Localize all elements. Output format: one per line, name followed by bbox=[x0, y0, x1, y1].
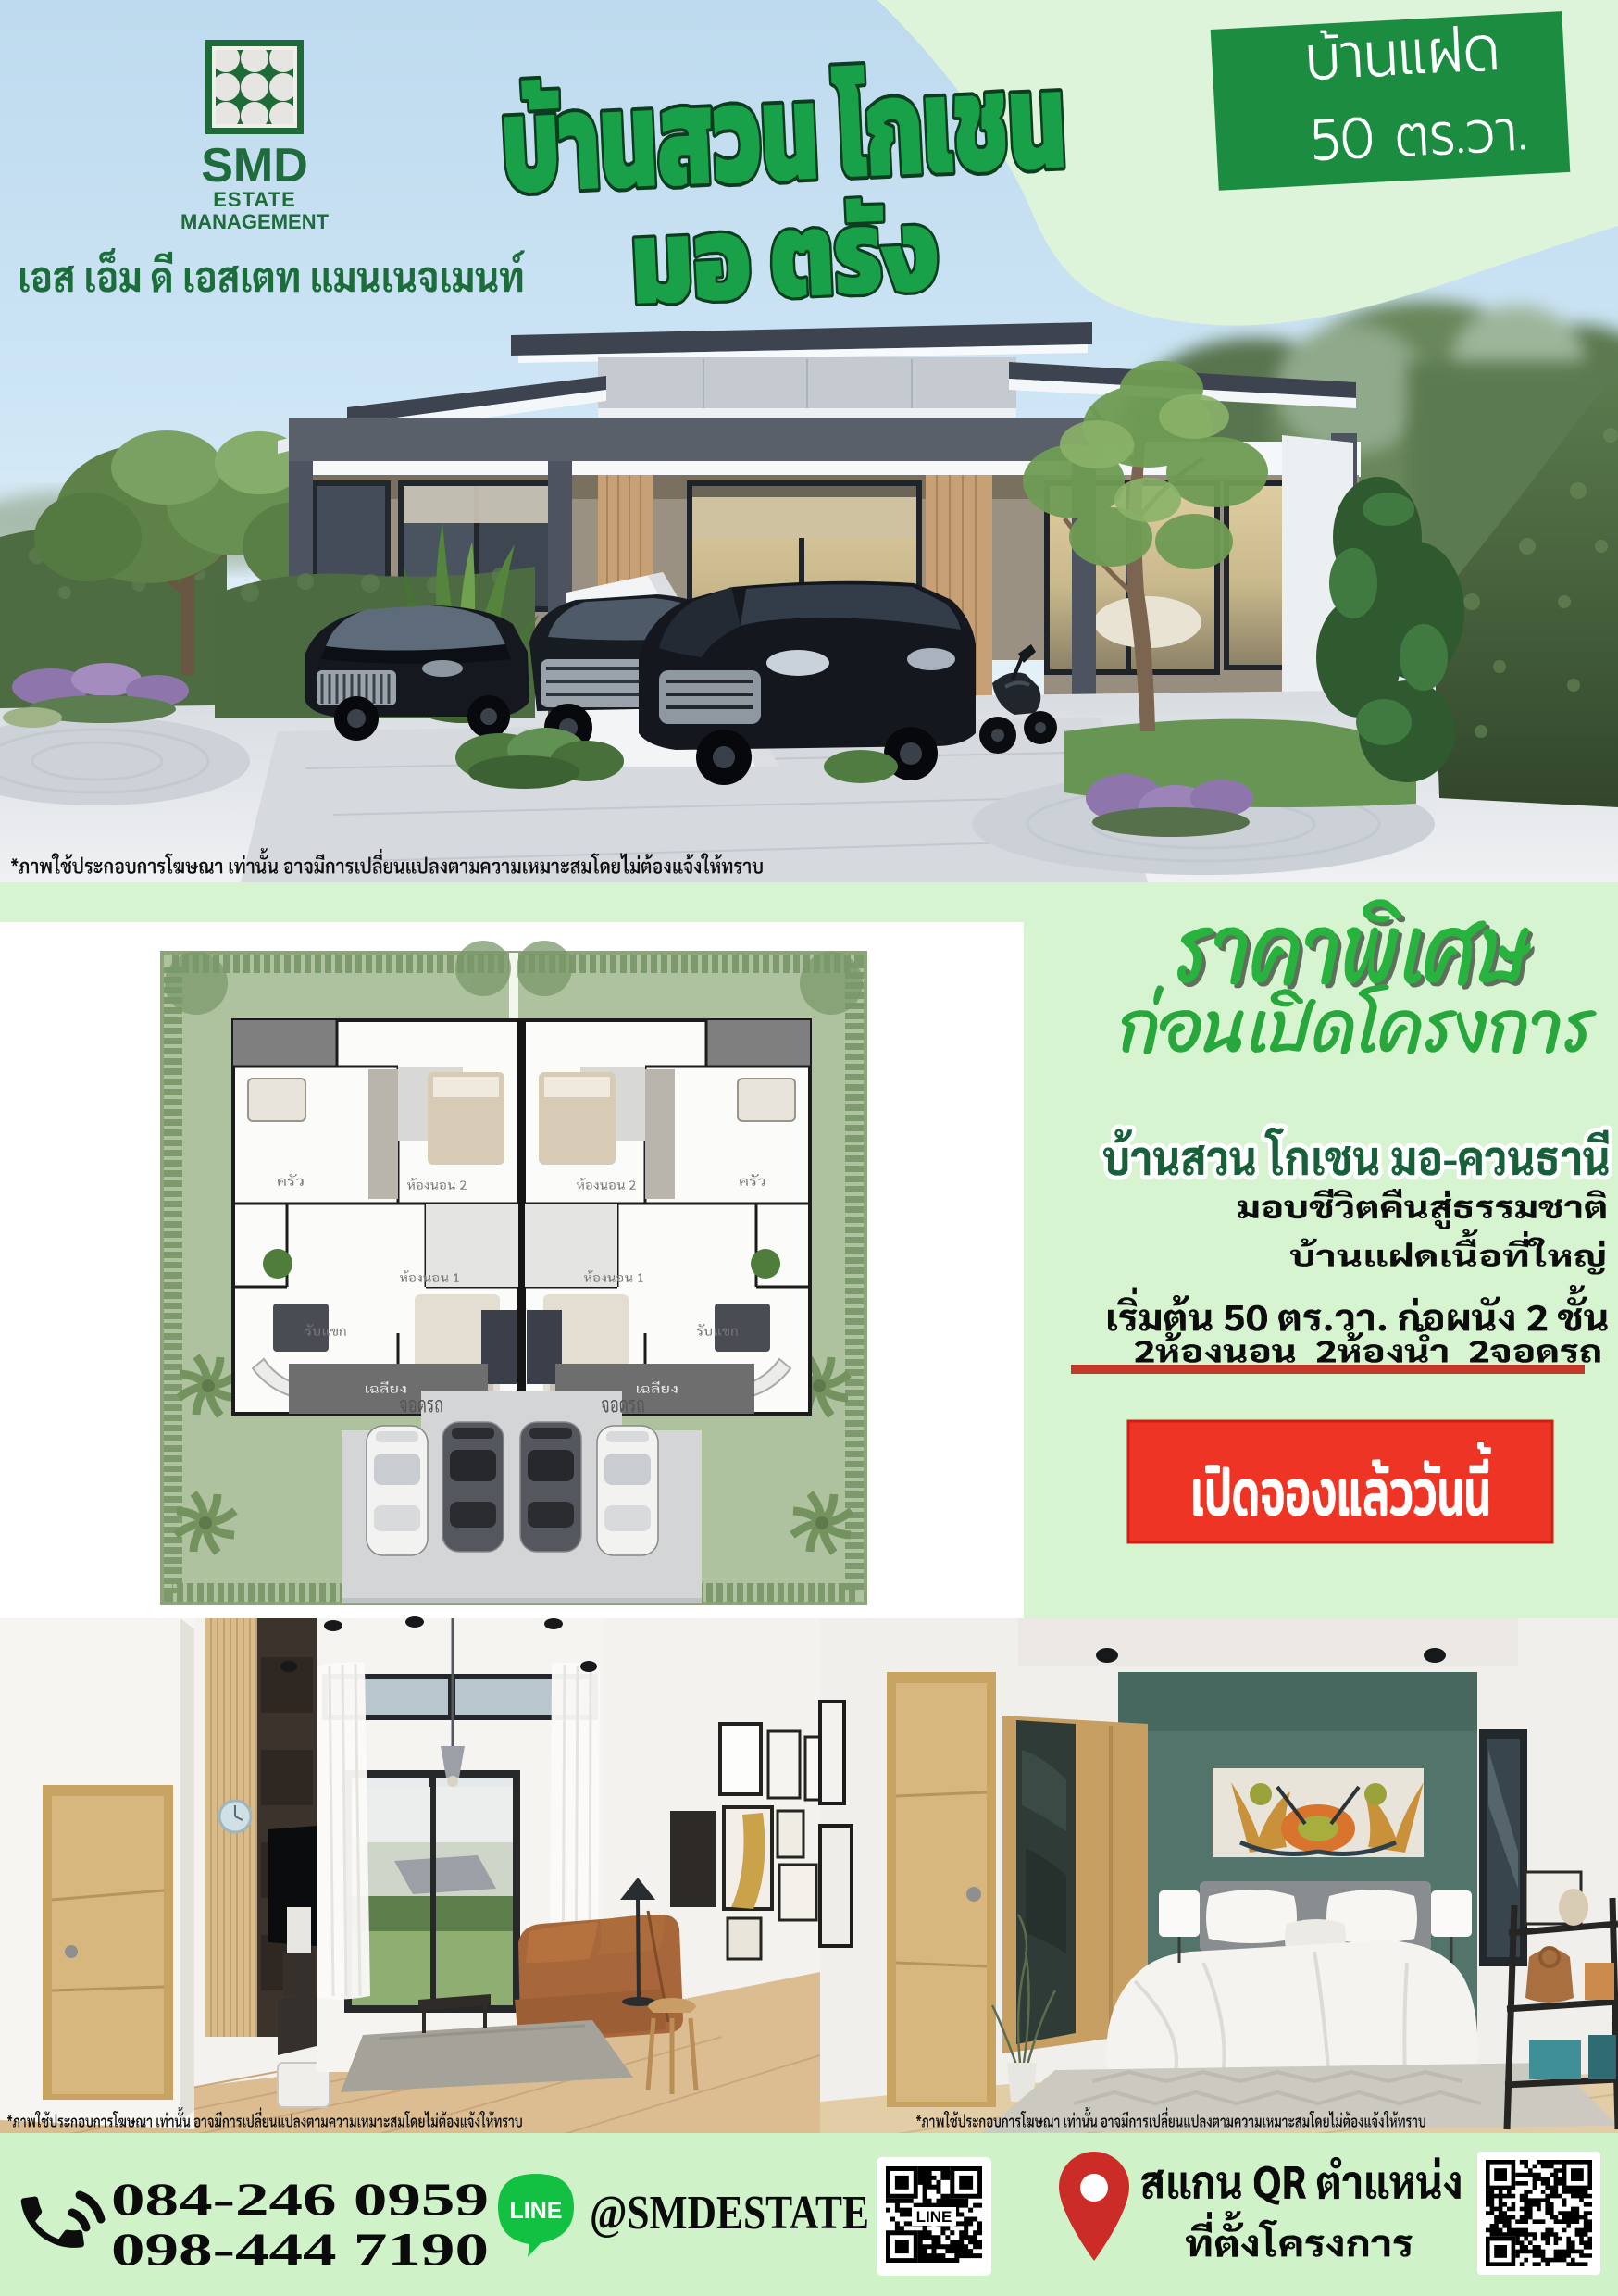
svg-text:084-246 0959: 084-246 0959 bbox=[111, 2173, 489, 2225]
svg-text:SMD: SMD bbox=[201, 139, 308, 193]
svg-text:LINE: LINE bbox=[916, 2208, 952, 2226]
svg-text:@SMDESTATE: @SMDESTATE bbox=[590, 2187, 869, 2240]
svg-text:MANAGEMENT: MANAGEMENT bbox=[180, 210, 330, 233]
svg-text:LINE: LINE bbox=[510, 2198, 563, 2224]
svg-text:ESTATE: ESTATE bbox=[213, 188, 296, 211]
svg-text:098-444 7190: 098-444 7190 bbox=[111, 2223, 489, 2275]
